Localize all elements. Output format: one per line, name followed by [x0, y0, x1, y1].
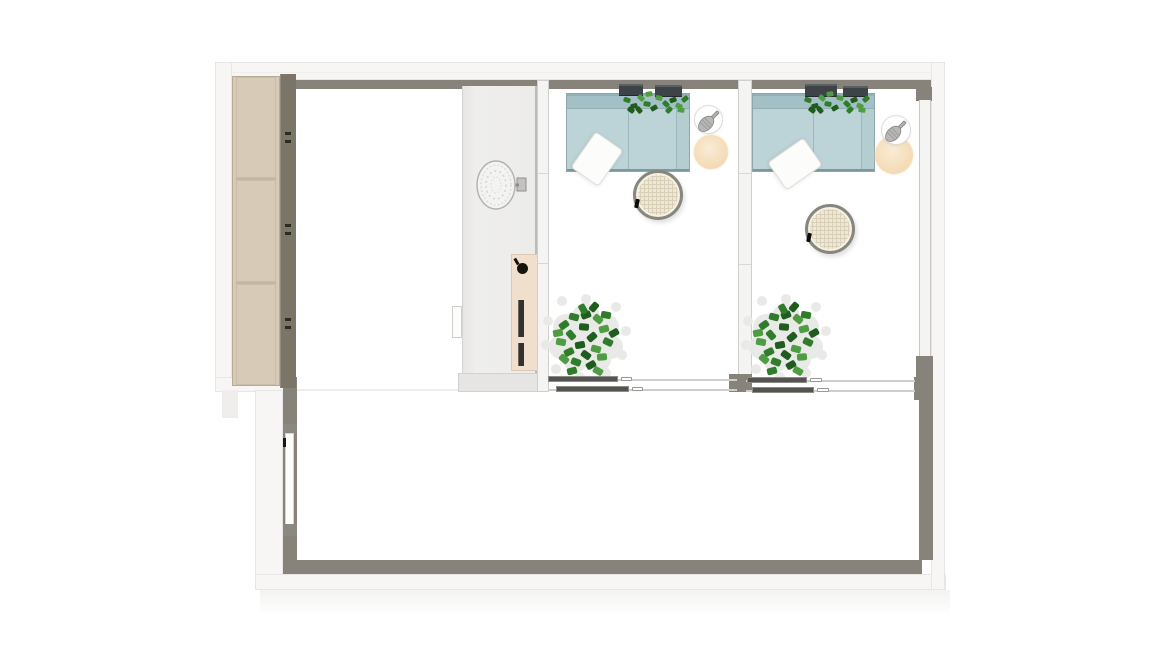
wardrobe-side-panel	[280, 74, 296, 388]
wall-bottom-face	[283, 560, 922, 574]
control-knob	[517, 263, 528, 274]
rattan-table-2-mark	[806, 233, 812, 243]
partition-base	[458, 373, 541, 392]
sofa-2-arm	[861, 109, 874, 169]
floor-plant-1	[536, 287, 636, 387]
wall-top-inner-face	[295, 80, 933, 89]
wardrobe-handle-1	[285, 132, 291, 135]
building-shadow	[260, 590, 950, 616]
wall-bottom	[255, 574, 946, 590]
wardrobe-door-3	[236, 282, 276, 385]
vase-icon	[697, 103, 721, 139]
wardrobe-handle-2b	[285, 232, 291, 235]
wall-right-face-top	[916, 87, 932, 101]
sofa-1-seam	[628, 109, 629, 169]
sliding-door-2-panel-b	[752, 387, 814, 393]
floor-plant-2	[736, 287, 836, 387]
decor-table-2	[881, 115, 911, 145]
rattan-table-2	[805, 204, 855, 254]
planter-foliage-1	[618, 90, 690, 114]
vase-icon	[884, 113, 908, 149]
sliding-door-1-panel-b	[556, 386, 629, 392]
wardrobe-handle-1b	[285, 140, 291, 143]
floor-plan: Top-down floor plan render of a suite: w…	[0, 0, 1166, 656]
wall-right-face-mid	[916, 356, 933, 377]
sliding-door-2-panel-a	[747, 377, 807, 383]
left-wall-return	[222, 390, 238, 418]
right-window-strip	[919, 100, 931, 357]
sofa-1-arm	[676, 109, 689, 169]
entry-door-handle	[283, 438, 286, 447]
sliding-door-1-handle-a	[621, 377, 632, 381]
wardrobe-handle-3	[285, 318, 291, 321]
wardrobe-door-2	[236, 178, 276, 281]
wall-mirror	[474, 158, 534, 212]
lantern-table-1	[694, 135, 728, 169]
wall-left-lower	[255, 390, 283, 590]
wardrobe-front	[232, 76, 280, 386]
wardrobe	[232, 74, 296, 388]
wardrobe-handle-2	[285, 224, 291, 227]
decor-table-1	[694, 105, 723, 134]
sliding-door-2-handle-b	[817, 388, 829, 392]
sliding-door-1-panel-a	[548, 376, 618, 382]
wardrobe-door-1	[236, 77, 276, 178]
wall-top-seam	[216, 72, 943, 73]
wall-right-face-lower	[919, 400, 933, 560]
entry-door-panel	[285, 433, 294, 525]
planter-foliage-2	[800, 90, 870, 114]
sliding-door-2-handle-a	[810, 378, 822, 382]
sliding-door-1-handle-b	[632, 387, 643, 391]
wardrobe-handle-3b	[285, 326, 291, 329]
open-room-floor-edge	[297, 389, 462, 391]
wall-left-upper	[215, 62, 232, 392]
rattan-table-1-mark	[634, 199, 640, 209]
rattan-table-1	[633, 170, 683, 220]
vent-slot-1	[518, 300, 524, 337]
partition-door-tab	[452, 306, 462, 338]
entry-door-frame-bottom	[283, 524, 297, 536]
wall-right	[931, 62, 945, 590]
vent-slot-2	[518, 343, 524, 366]
plan-caption: Top-down floor plan render of a suite: w…	[0, 0, 1, 1]
door-track-end-block-right	[914, 377, 933, 400]
wall-top	[215, 62, 944, 80]
